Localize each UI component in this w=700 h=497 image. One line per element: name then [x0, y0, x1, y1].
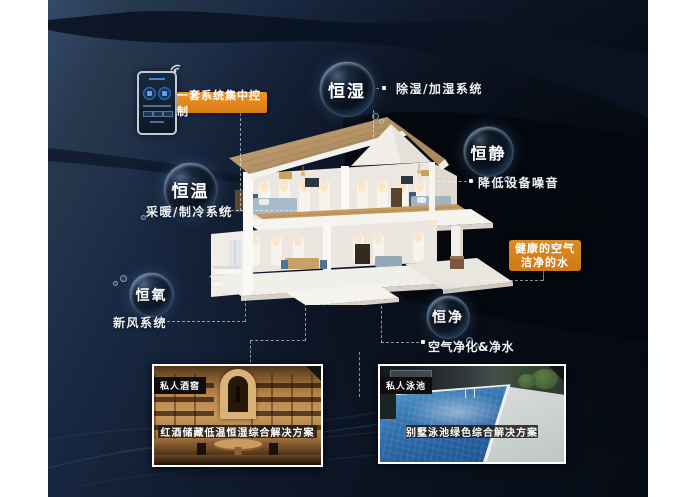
connector-pool [359, 352, 360, 397]
wine-caption: 红酒储藏低温恒湿综合解决方案 [158, 425, 317, 438]
thermostat-dial-icon [143, 87, 156, 100]
pool-card: 私人泳池 别墅泳池绿色综合解决方案 [378, 364, 566, 464]
connector-purify-v [381, 306, 382, 343]
pool-caption: 别墅泳池绿色综合解决方案 [406, 425, 538, 438]
phone-row [150, 121, 164, 123]
phone-row [143, 105, 171, 107]
smart-control-panel [137, 71, 177, 135]
pool-tag: 私人泳池 [380, 377, 432, 394]
connector-wine-h [250, 340, 305, 341]
connector-quiet [437, 181, 467, 182]
deco-bubble [113, 281, 118, 286]
bubble-quiet: 恒静 [463, 126, 514, 177]
connector-heating [226, 210, 298, 211]
label-fresh-air: 新风系统 [113, 314, 167, 331]
label-heating: 采暖/制冷系统 [146, 203, 233, 220]
connector-purify-h [381, 342, 419, 343]
deco-bubble [120, 275, 127, 282]
wine-tag: 私人酒窖 [154, 377, 206, 394]
wine-cellar-photo: 私人酒窖 红酒储藏低温恒湿综合解决方案 [154, 366, 321, 465]
connector-fresh-h [167, 321, 245, 322]
poster-canvas: 一套系统集中控制 恒湿 恒静 恒温 恒氧 恒净 除湿/加湿系统 降低设备噪音 采… [0, 0, 700, 497]
label-dehumidify: 除湿/加湿系统 [396, 80, 483, 97]
phone-tile [143, 111, 153, 117]
bubble-oxygen: 恒氧 [129, 272, 174, 317]
bullet-quiet [469, 179, 473, 183]
bubble-humidity: 恒湿 [319, 61, 375, 117]
fan-dial-icon [158, 87, 171, 100]
connector-phone [240, 113, 241, 211]
wine-cellar-card: 私人酒窖 红酒储藏低温恒湿综合解决方案 [152, 364, 323, 467]
plants [518, 374, 536, 388]
card-line1: 健康的空气 [515, 242, 575, 256]
label-purify: 空气净化&净水 [428, 338, 514, 355]
deco-bubble [379, 119, 384, 124]
bullet-humidity [382, 86, 386, 90]
connector-card-v [543, 271, 544, 281]
phone-tile [153, 111, 163, 117]
healthy-air-water-card: 健康的空气 洁净的水 [509, 240, 581, 271]
card-line2: 洁净的水 [521, 256, 569, 270]
deco-bubble [372, 113, 379, 120]
phone-screen-title [149, 78, 165, 80]
pool-photo: 私人泳池 别墅泳池绿色综合解决方案 [380, 366, 564, 462]
corner-ribbon [306, 366, 321, 381]
phone-tile [163, 111, 173, 117]
label-noise: 降低设备噪音 [478, 174, 559, 191]
central-control-label: 一套系统集中控制 [177, 92, 267, 113]
connector-card-h [480, 280, 543, 281]
pool-ladder [465, 388, 475, 398]
connector-fresh-v [245, 282, 246, 322]
corner-ribbon [549, 366, 564, 381]
wine-arch [220, 369, 256, 419]
bubble-clean: 恒净 [426, 295, 470, 339]
wifi-icon [166, 57, 186, 73]
connector-wine-v1 [305, 288, 306, 341]
bullet-purify [421, 340, 425, 344]
